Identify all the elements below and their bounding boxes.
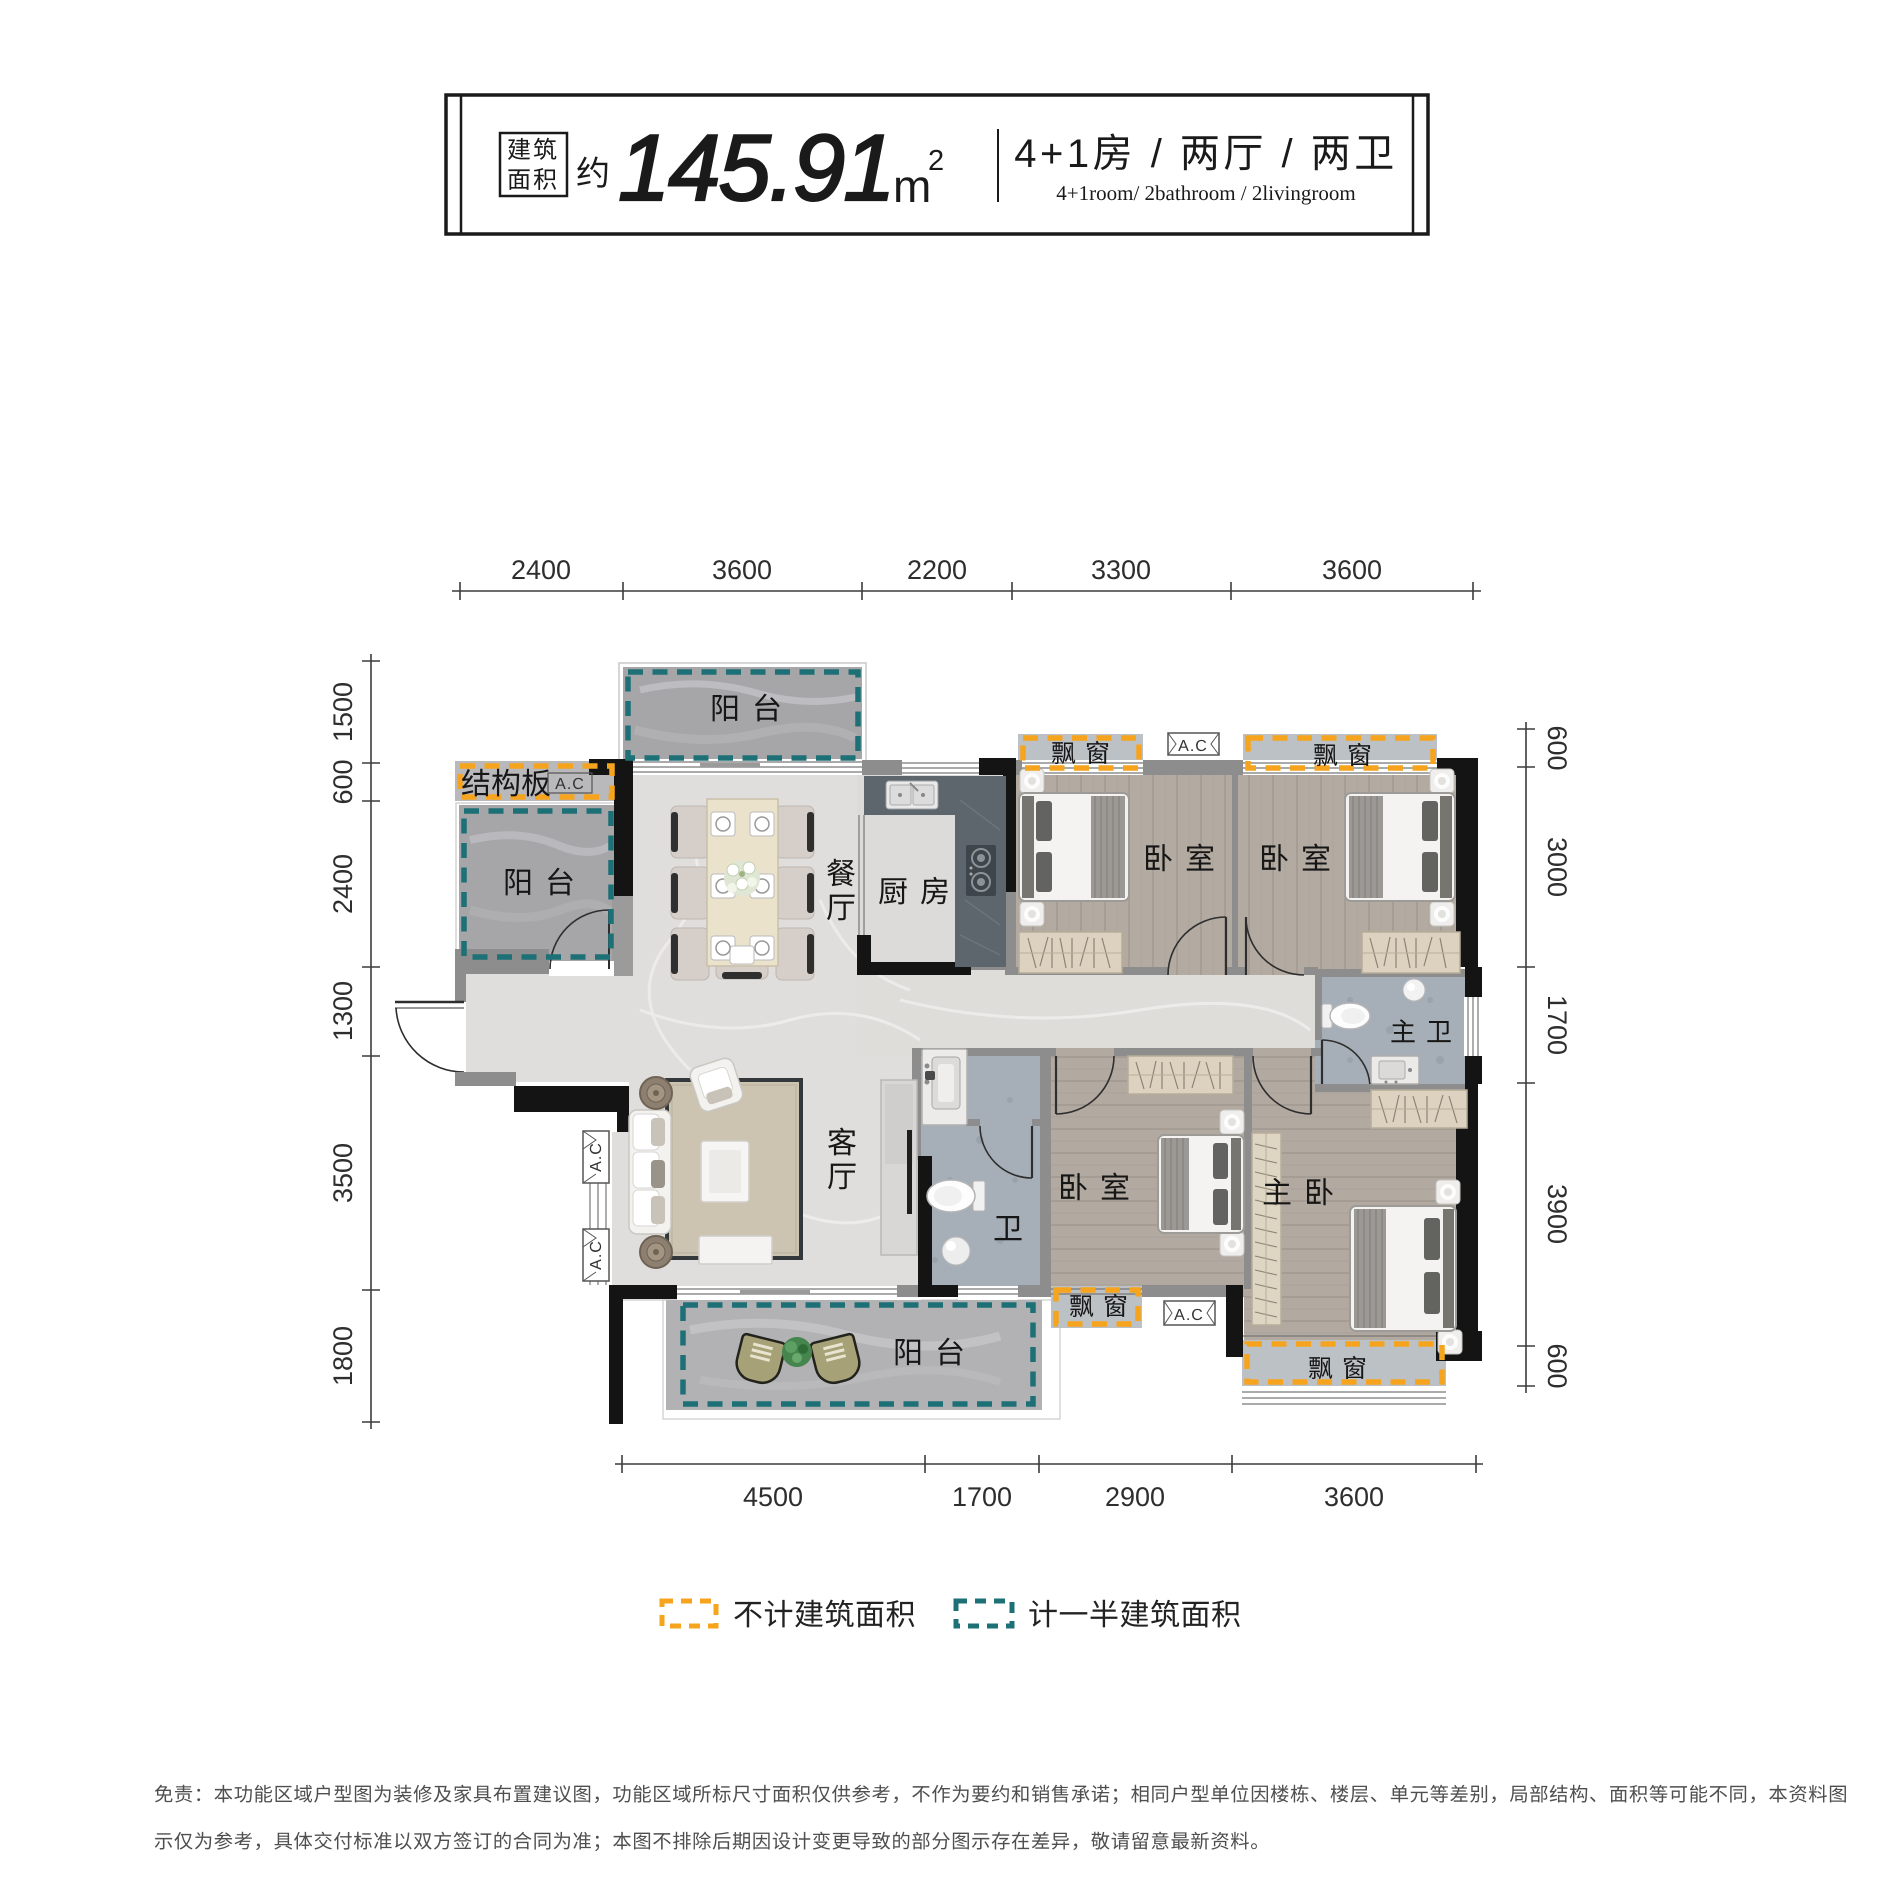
svg-text:客: 客 [827,1127,869,1160]
svg-text:2900: 2900 [1105,1482,1165,1512]
svg-text:主卧: 主卧 [1262,1177,1346,1210]
svg-text:3600: 3600 [1322,555,1382,585]
svg-text:4500: 4500 [743,1482,803,1512]
svg-text:600: 600 [1542,1343,1572,1388]
svg-text:餐: 餐 [826,858,868,891]
svg-text:飘窗: 飘窗 [1051,740,1119,768]
svg-text:A.C: A.C [1174,1307,1204,1324]
svg-text:面积: 面积 [507,167,559,194]
svg-text:1800: 1800 [328,1326,358,1386]
svg-text:免责：本功能区域户型图为装修及家具布置建议图，功能区域所标尺: 免责：本功能区域户型图为装修及家具布置建议图，功能区域所标尺寸面积仅供参考，不作… [154,1784,1848,1806]
svg-text:计一半建筑面积: 计一半建筑面积 [1028,1599,1242,1632]
svg-text:约: 约 [576,155,610,193]
svg-text:2400: 2400 [511,555,571,585]
svg-text:m: m [893,160,931,212]
svg-text:建筑: 建筑 [507,137,559,164]
svg-text:2: 2 [928,145,944,177]
svg-text:阳台: 阳台 [503,867,587,900]
svg-text:A.C: A.C [588,1240,605,1270]
svg-text:3300: 3300 [1091,555,1151,585]
svg-text:飘窗: 飘窗 [1069,1293,1137,1321]
svg-text:阳台: 阳台 [893,1337,977,1370]
svg-text:145.91: 145.91 [618,115,894,220]
svg-text:3000: 3000 [1542,837,1572,897]
svg-text:结构板: 结构板 [461,768,551,801]
svg-text:卧室: 卧室 [1058,1172,1142,1205]
svg-text:3900: 3900 [1542,1184,1572,1244]
svg-text:厅: 厅 [826,892,868,925]
svg-text:主卫: 主卫 [1390,1017,1462,1047]
svg-text:3600: 3600 [712,555,772,585]
svg-text:1700: 1700 [1542,995,1572,1055]
svg-text:阳台: 阳台 [710,693,794,726]
svg-text:2400: 2400 [328,854,358,914]
svg-text:A.C: A.C [588,1142,605,1172]
svg-text:4+1room/ 2bathroom / 2livingro: 4+1room/ 2bathroom / 2livingroom [1056,181,1355,205]
svg-text:1700: 1700 [952,1482,1012,1512]
svg-text:1300: 1300 [328,981,358,1041]
svg-text:600: 600 [328,759,358,804]
svg-text:1500: 1500 [328,682,358,742]
svg-text:A.C: A.C [555,776,585,793]
svg-text:卫: 卫 [993,1213,1035,1246]
svg-text:卧室: 卧室 [1143,843,1227,876]
svg-text:4+1房 / 两厅 / 两卫: 4+1房 / 两厅 / 两卫 [1014,132,1398,176]
svg-text:示仅为参考，具体交付标准以双方签订的合同为准；本图不排除后期: 示仅为参考，具体交付标准以双方签订的合同为准；本图不排除后期因设计变更导致的部分… [154,1831,1270,1853]
svg-text:2200: 2200 [907,555,967,585]
svg-text:3500: 3500 [328,1143,358,1203]
svg-text:卧室: 卧室 [1259,843,1343,876]
svg-text:不计建筑面积: 不计建筑面积 [733,1599,916,1632]
svg-text:厅: 厅 [827,1161,869,1194]
svg-text:A.C: A.C [1178,738,1208,755]
svg-text:飘窗: 飘窗 [1313,742,1381,770]
svg-text:飘窗: 飘窗 [1308,1355,1376,1383]
svg-text:厨房: 厨房 [878,876,962,909]
svg-text:600: 600 [1542,725,1572,770]
svg-text:3600: 3600 [1324,1482,1384,1512]
